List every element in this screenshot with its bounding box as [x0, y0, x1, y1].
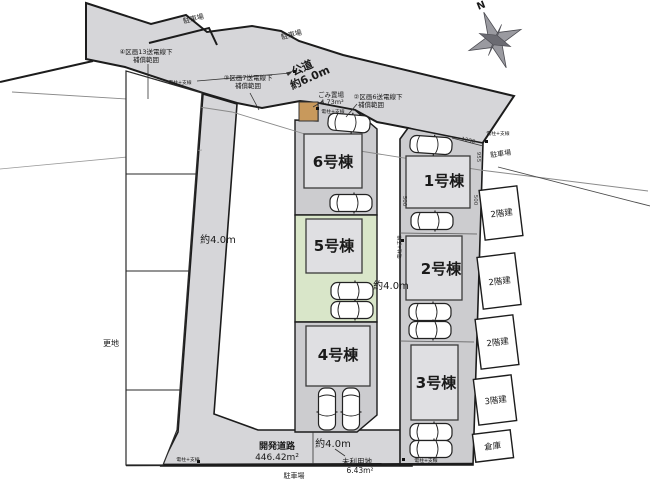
building-1-label: 1号棟 [424, 172, 465, 190]
building-3-label: 3号棟 [416, 374, 457, 392]
zone4-label: 補償範囲 [133, 55, 159, 64]
utility-pole-label: 電柱+支線 [414, 457, 437, 464]
building-5-label: 5号棟 [314, 237, 355, 255]
utility-pole-label: 電柱+支線 [396, 235, 403, 258]
parking-label: 駐車場 [490, 148, 512, 160]
building-4-label: 4号棟 [318, 346, 359, 364]
site-bottom-boundary [126, 464, 473, 465]
trash-label: 4.73m² [320, 98, 344, 106]
trash-area-square [299, 102, 318, 121]
dim-500: 500 [472, 195, 478, 206]
utility-pole-label: 電柱+支線 [168, 79, 191, 86]
zone2-label: 補償範囲 [358, 100, 384, 109]
site-plan: N 駐車場 駐車場 駐車場 駐車場 ④区画13送電線下 補償範囲 ③区画7送電線… [0, 0, 650, 488]
site-plan-canvas: N 駐車場 駐車場 駐車場 駐車場 ④区画13送電線下 補償範囲 ③区画7送電線… [0, 0, 650, 488]
unused-land-label: 未利用地 [342, 456, 372, 466]
dim-955: 955 [475, 152, 481, 163]
zone4-label: ④区画13送電線下 [119, 47, 173, 56]
outer-boundary-topleft [0, 61, 93, 82]
road-width-label: 約4.0m [200, 233, 236, 246]
neighbor-label: 倉庫 [484, 440, 503, 453]
utility-pole-label: 電柱+支線 [176, 456, 199, 463]
building-6-label: 6号棟 [313, 153, 354, 171]
building-2-label: 2号棟 [421, 260, 462, 278]
dev-road-label: 開発道路 [259, 440, 296, 452]
dev-road-label: 446.42m² [255, 453, 299, 463]
compass-north-label: N [475, 0, 487, 13]
compass: N [453, 0, 532, 78]
zone3-label: 補償範囲 [235, 81, 261, 90]
utility-pole-label: 電柱+支線 [486, 130, 509, 137]
unused-land-label: 6.43m² [346, 466, 373, 475]
dim-500: 500 [401, 196, 407, 207]
road-width-label: 約4.0m [373, 279, 409, 292]
parking-label: 駐車場 [284, 471, 305, 480]
neighbor-parking-line [498, 167, 650, 206]
utility-pole-label: 電柱+支線 [321, 108, 344, 115]
road-width-label: 約4.0m [315, 437, 351, 450]
zone3-label: ③区画7送電線下 [224, 73, 273, 82]
zone2-label: ②区画6送電線下 [354, 92, 403, 101]
vacant-land-label: 更地 [103, 338, 119, 348]
